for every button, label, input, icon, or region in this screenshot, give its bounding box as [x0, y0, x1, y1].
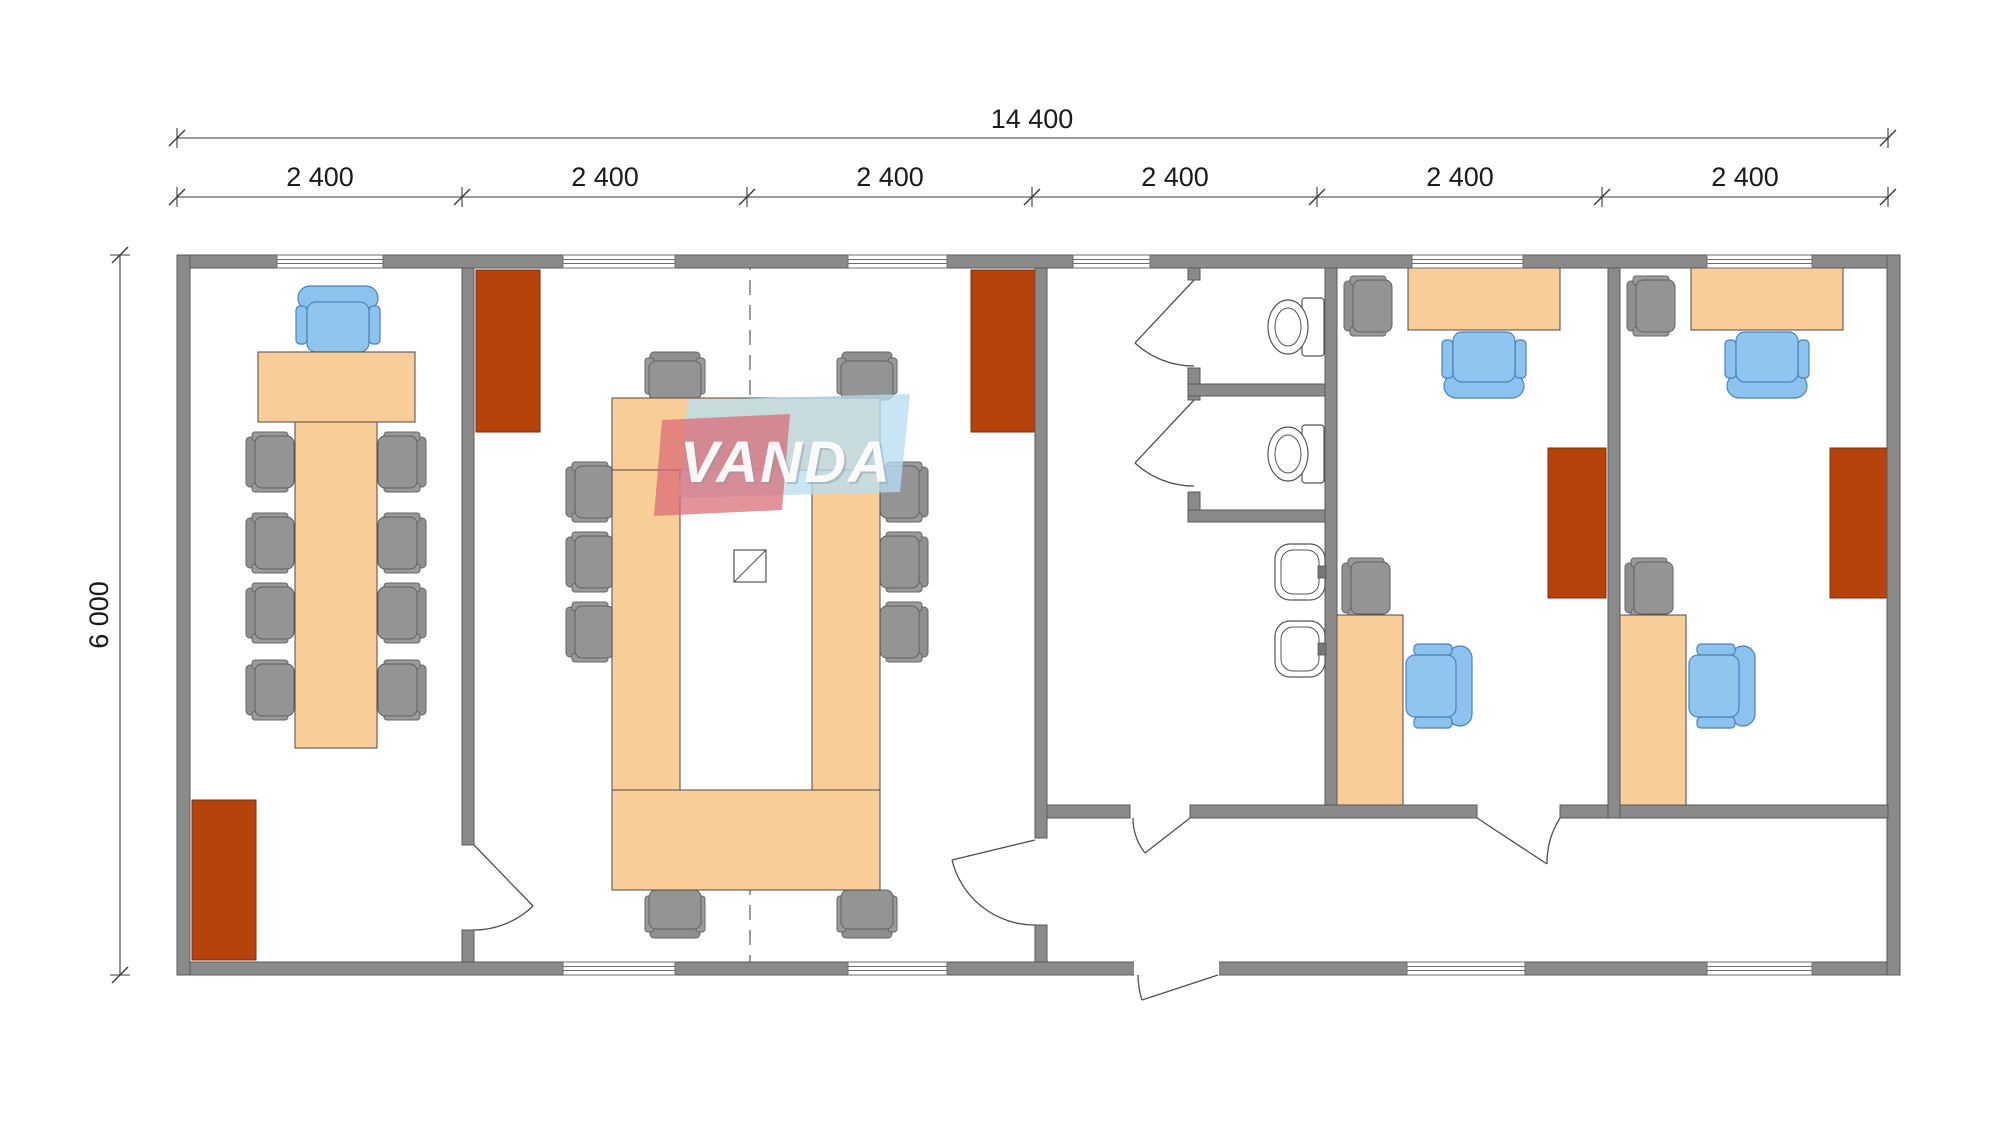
desk — [1337, 615, 1403, 805]
gray-chair-icon — [566, 462, 614, 522]
wall-meeting-lobby — [1035, 268, 1047, 838]
gray-chair-icon — [566, 532, 614, 592]
wall-exterior-left — [177, 255, 190, 975]
dim-module-label-6: 2 400 — [1711, 162, 1779, 192]
wall-exterior-bottom — [177, 962, 1900, 975]
toilet-icon — [1268, 425, 1324, 483]
window — [1707, 962, 1812, 975]
gray-chair-icon — [645, 890, 705, 938]
entrance-door-swing — [1138, 975, 1218, 1000]
desk — [1691, 268, 1843, 330]
floor-plan-page: 14 400 2 400 2 400 2 400 2 400 2 400 2 4… — [0, 0, 2000, 1147]
sink-icon — [1275, 544, 1326, 600]
sink-icon — [1275, 621, 1326, 677]
radiator-cabinet — [1548, 448, 1606, 598]
dim-module-label-5: 2 400 — [1426, 162, 1494, 192]
gray-chair-icon — [1342, 558, 1390, 618]
wall-lobby-top — [1047, 805, 1130, 818]
gray-chair-icon — [378, 432, 426, 492]
door-office-left-meeting — [474, 845, 533, 930]
wall-washroom-office — [1325, 268, 1337, 818]
door-meeting-lobby — [952, 840, 1035, 925]
gray-chair-icon — [1627, 276, 1675, 336]
office-middle-furniture — [1337, 268, 1606, 805]
door-wc-cubicle-1 — [1135, 280, 1194, 366]
toilet-icon — [1268, 298, 1324, 356]
radiator-cabinet — [1830, 448, 1888, 598]
dim-module-label-4: 2 400 — [1141, 162, 1209, 192]
watermark-text: VANDA — [680, 430, 892, 495]
dim-total-width-label: 14 400 — [991, 104, 1074, 134]
window — [848, 962, 947, 975]
meeting-room-furniture — [476, 270, 1035, 938]
gray-chair-icon — [378, 583, 426, 643]
room-entrance-lobby — [1047, 818, 1887, 962]
dim-total-depth-label: 6 000 — [84, 581, 114, 649]
gray-chair-icon — [837, 352, 897, 400]
wall-stub — [462, 930, 474, 962]
radiator-cabinet — [192, 800, 256, 960]
task-chair-icon — [1725, 332, 1809, 398]
radiator-cabinet — [476, 270, 540, 432]
sanitary-fixtures — [1268, 298, 1326, 677]
wall-exterior-right — [1887, 255, 1900, 975]
wall-office-divider — [1608, 268, 1620, 818]
gray-chair-icon — [246, 432, 294, 492]
window — [277, 255, 383, 268]
desk — [1408, 268, 1560, 330]
entrance-opening — [1134, 961, 1219, 976]
wall-exterior-top — [177, 255, 1900, 268]
office-right-furniture — [1620, 268, 1888, 805]
gray-chair-icon — [378, 660, 426, 720]
executive-chair-icon — [296, 286, 380, 352]
dim-module-label-1: 2 400 — [286, 162, 354, 192]
floor-plan-canvas: 14 400 2 400 2 400 2 400 2 400 2 400 2 4… — [0, 0, 2000, 1147]
door-office-middle-corridor — [1477, 818, 1560, 864]
window — [563, 255, 675, 268]
wall-wc-divider — [1188, 384, 1337, 396]
wall-wc-basin — [1188, 510, 1337, 522]
dim-module-label-3: 2 400 — [856, 162, 924, 192]
task-chair-icon — [1689, 644, 1755, 728]
office-left-furniture — [192, 286, 426, 960]
task-chair-icon — [1406, 644, 1472, 728]
gray-chair-icon — [1625, 558, 1673, 618]
dim-module-label-2: 2 400 — [571, 162, 639, 192]
gray-chair-icon — [246, 660, 294, 720]
gray-chair-icon — [645, 352, 705, 400]
window — [563, 962, 675, 975]
desk — [1620, 615, 1686, 805]
wall-corridor-top — [1190, 805, 1477, 818]
window — [1412, 255, 1523, 268]
radiator-cabinet — [971, 270, 1035, 432]
task-chair-icon — [1442, 332, 1526, 398]
door-washroom-lobby — [1133, 818, 1190, 853]
wall-wc-front — [1188, 268, 1200, 280]
conference-table-opening — [680, 470, 812, 790]
gray-chair-icon — [880, 532, 928, 592]
window — [1407, 962, 1525, 975]
door-wc-cubicle-2 — [1135, 400, 1194, 486]
gray-chair-icon — [378, 513, 426, 573]
head-desk — [258, 352, 415, 422]
gray-chair-icon — [566, 602, 614, 662]
gray-chair-icon — [1344, 276, 1392, 336]
gray-chair-icon — [246, 513, 294, 573]
window — [1707, 255, 1812, 268]
gray-chair-icon — [246, 583, 294, 643]
wall-office-left-meeting — [462, 268, 474, 845]
gray-chair-icon — [880, 602, 928, 662]
window — [1073, 255, 1150, 268]
gray-chair-icon — [837, 890, 897, 938]
long-table — [295, 422, 377, 748]
wall-stub — [1035, 925, 1047, 962]
window — [848, 255, 947, 268]
